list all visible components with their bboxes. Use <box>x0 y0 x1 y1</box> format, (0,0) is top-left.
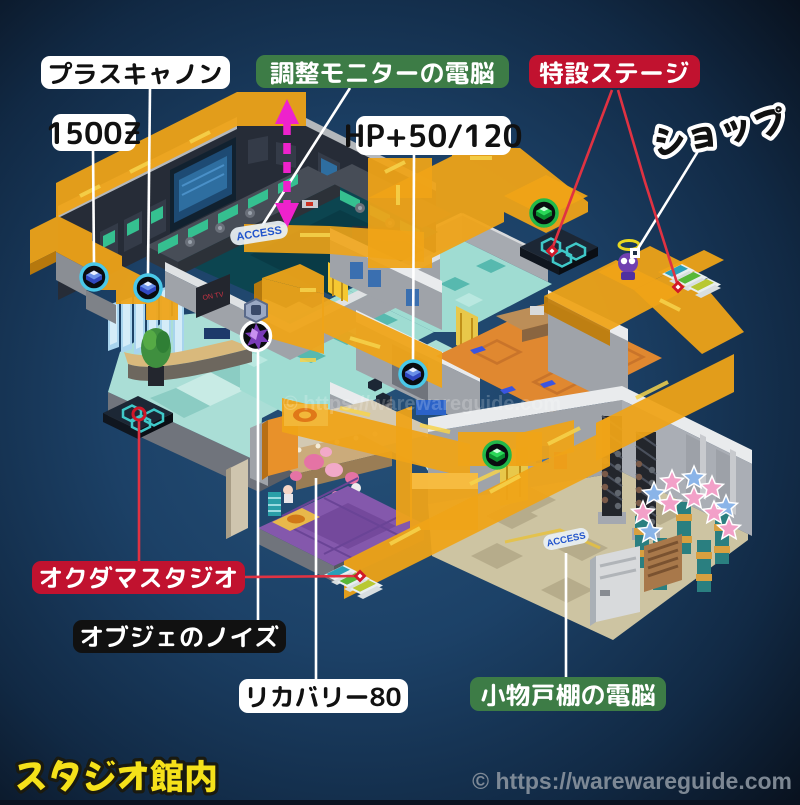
svg-text:© https://warewareguide.com: © https://warewareguide.com <box>283 393 561 415</box>
svg-text:© https://warewareguide.com: © https://warewareguide.com <box>472 768 792 794</box>
